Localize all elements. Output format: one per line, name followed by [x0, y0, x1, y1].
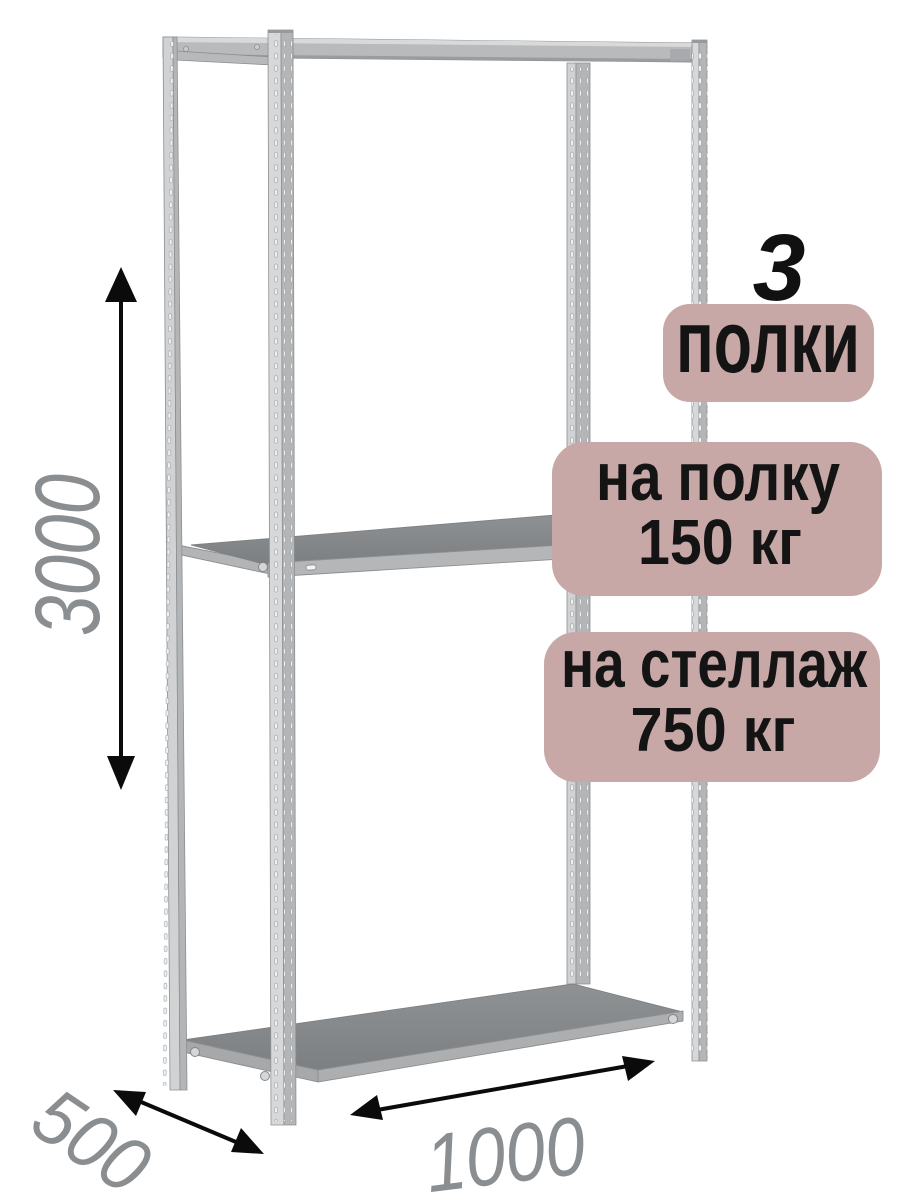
svg-text:полки: полки	[676, 292, 860, 391]
svg-text:3000: 3000	[17, 474, 119, 636]
svg-text:750 кг: 750 кг	[631, 696, 796, 765]
svg-text:150 кг: 150 кг	[638, 506, 802, 578]
svg-text:на стеллаж: на стеллаж	[561, 626, 868, 702]
svg-text:на полку: на полку	[596, 439, 840, 515]
